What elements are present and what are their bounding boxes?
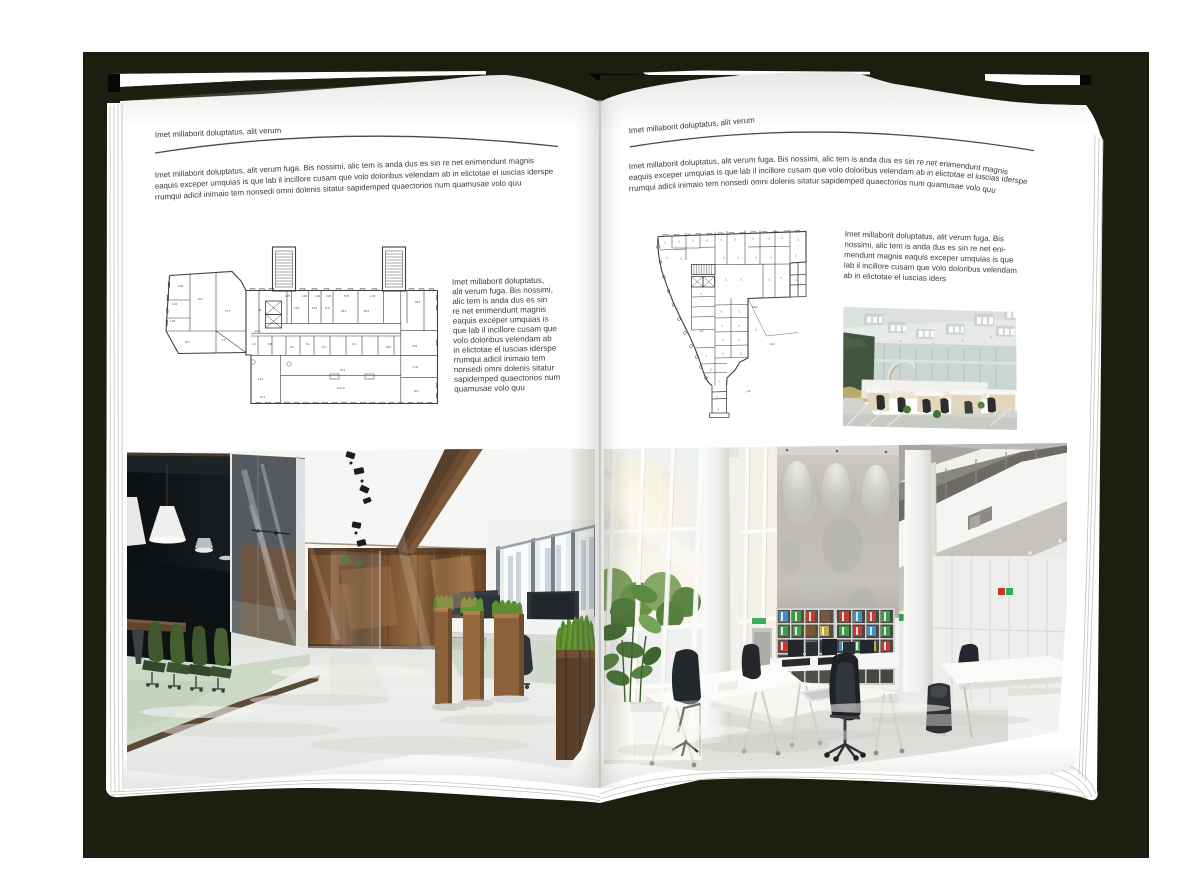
svg-text:2.92: 2.92 <box>315 294 321 298</box>
svg-text:9.8: 9.8 <box>268 342 272 346</box>
svg-text:2.75: 2.75 <box>285 294 291 298</box>
svg-text:13.8: 13.8 <box>294 306 300 310</box>
svg-text:40.7: 40.7 <box>185 340 191 344</box>
svg-text:20.2: 20.2 <box>198 297 204 301</box>
svg-text:12.6: 12.6 <box>312 306 318 310</box>
svg-text:5.51: 5.51 <box>412 344 418 348</box>
svg-text:37.7: 37.7 <box>225 309 231 313</box>
svg-text:2.90: 2.90 <box>302 294 308 298</box>
svg-text:8.1: 8.1 <box>306 342 310 346</box>
svg-text:37.1: 37.1 <box>340 368 346 372</box>
svg-text:11.5: 11.5 <box>325 306 330 310</box>
svg-text:Тамб: Тамб <box>752 306 758 309</box>
svg-text:14.2: 14.2 <box>258 377 264 381</box>
svg-text:2-й эт: 2-й эт <box>337 386 346 390</box>
svg-text:quamusae volo quu: quamusae volo quu <box>454 383 525 393</box>
svg-text:30.7: 30.7 <box>414 389 420 393</box>
svg-text:21.7: 21.7 <box>260 395 266 399</box>
svg-text:11.7: 11.7 <box>322 345 327 349</box>
svg-text:1.26: 1.26 <box>172 302 178 306</box>
svg-text:2.06: 2.06 <box>178 284 184 288</box>
svg-text:8.6: 8.6 <box>290 345 294 349</box>
svg-text:4.6: 4.6 <box>352 342 356 346</box>
svg-text:2.0: 2.0 <box>252 342 256 346</box>
svg-text:7.6: 7.6 <box>222 338 226 342</box>
svg-text:18.3: 18.3 <box>341 309 347 313</box>
svg-text:25.0: 25.0 <box>386 345 392 349</box>
svg-text:30.2: 30.2 <box>415 300 421 304</box>
svg-text:1.45: 1.45 <box>370 294 376 298</box>
svg-text:5.79: 5.79 <box>344 294 350 298</box>
svg-text:14.6: 14.6 <box>770 343 775 346</box>
svg-text:1.06: 1.06 <box>170 319 176 323</box>
svg-text:△ 12: △ 12 <box>745 390 751 393</box>
svg-text:28.6: 28.6 <box>364 309 370 313</box>
svg-text:21.4: 21.4 <box>255 329 261 333</box>
svg-text:1.43: 1.43 <box>413 365 419 369</box>
svg-text:3.00: 3.00 <box>326 294 332 298</box>
